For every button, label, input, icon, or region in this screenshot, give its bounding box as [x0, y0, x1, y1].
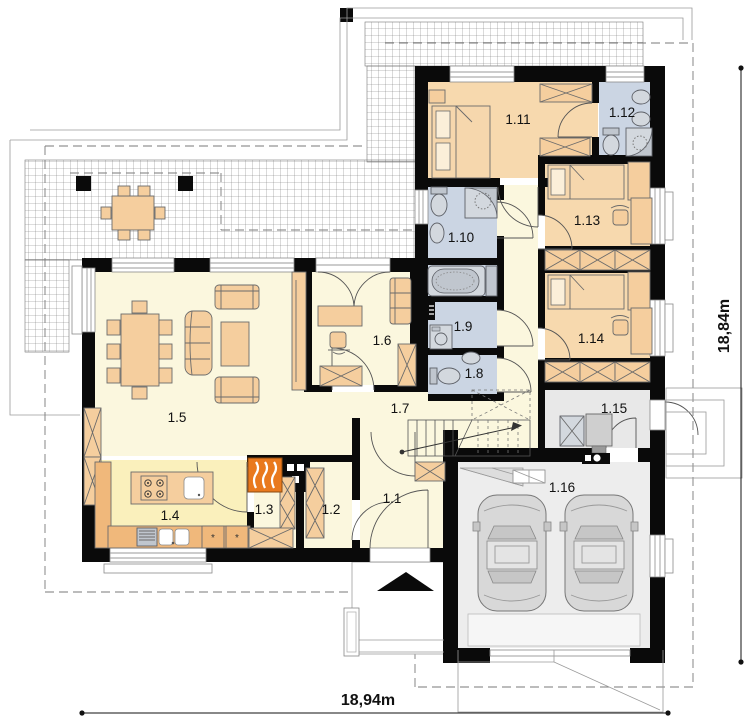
washing-machine-icon	[430, 325, 452, 349]
toilet-icon	[603, 128, 619, 155]
terrace-door-opening	[316, 258, 390, 272]
car	[560, 495, 638, 611]
garage-door-zone	[468, 614, 640, 646]
single-bed	[548, 165, 624, 199]
wardrobe	[540, 138, 590, 156]
window	[72, 266, 95, 334]
kitchen-island	[131, 472, 213, 504]
side-table	[628, 162, 650, 200]
svg-text:*: *	[211, 533, 215, 544]
room-label-1-13: 1.13	[574, 213, 600, 228]
wardrobe	[249, 528, 293, 548]
room-label-1-4: 1.4	[161, 508, 180, 523]
sofa	[185, 311, 212, 375]
room-label-1-8: 1.8	[465, 366, 484, 381]
wardrobe	[540, 84, 592, 102]
planter	[344, 608, 359, 656]
room-label-1-10: 1.10	[448, 230, 474, 245]
room-label-1-9: 1.9	[454, 319, 473, 334]
garage-step	[513, 470, 545, 483]
loveseat	[215, 285, 259, 309]
sink-icon	[430, 223, 444, 243]
window	[450, 66, 514, 82]
coffee-table	[221, 322, 249, 366]
room-hall-floor	[304, 392, 443, 462]
loveseat	[215, 377, 259, 403]
window	[415, 190, 428, 224]
heater-unit-icon	[582, 453, 610, 464]
shower-icon	[626, 128, 652, 156]
small-sofa	[390, 278, 411, 324]
entry-door-opening	[370, 548, 430, 562]
svg-text:*: *	[235, 533, 239, 544]
storage-box	[560, 416, 584, 446]
wardrobe-row	[545, 250, 650, 270]
boiler-icon	[586, 414, 612, 446]
side-table	[628, 272, 650, 310]
room-label-1-2: 1.2	[322, 502, 341, 517]
shower-icon	[465, 188, 497, 218]
room-label-1-1: 1.1	[383, 491, 402, 506]
bathtub-icon	[428, 266, 497, 296]
kitchen-sink-unit	[137, 528, 189, 546]
room-label-1-15: 1.15	[601, 401, 627, 416]
room-label-1-16: 1.16	[549, 480, 575, 495]
wardrobe	[415, 462, 445, 481]
dimension-bottom: 18,94m	[341, 692, 395, 709]
wall-radiator-icon	[428, 302, 435, 320]
terrace-column	[340, 8, 353, 22]
wardrobe	[398, 344, 416, 386]
room-label-1-3: 1.3	[255, 502, 274, 517]
toilet-icon	[430, 368, 460, 384]
sink-icon	[632, 90, 650, 104]
desk	[631, 308, 652, 354]
floor-plan: * *	[0, 0, 750, 726]
tall-cabinet	[292, 272, 306, 390]
window	[650, 300, 673, 356]
window	[104, 548, 212, 573]
room-label-1-6: 1.6	[373, 333, 392, 348]
toilet-icon	[431, 187, 447, 216]
desk	[631, 198, 652, 244]
car	[473, 495, 551, 611]
sink-icon	[462, 352, 480, 364]
window	[650, 535, 673, 577]
room-label-1-12: 1.12	[609, 105, 635, 120]
utility-exterior-door	[650, 400, 665, 430]
wardrobe	[320, 366, 362, 386]
terrace-column	[178, 176, 193, 191]
wardrobe-row	[545, 362, 650, 382]
single-bed	[548, 275, 624, 309]
dimension-right: 18,84m	[716, 299, 733, 353]
desk	[318, 306, 362, 326]
room-label-1-5: 1.5	[168, 410, 187, 425]
window	[112, 258, 174, 272]
window	[606, 66, 644, 82]
fireplace	[248, 458, 282, 492]
double-bed	[432, 106, 490, 178]
garage-door	[490, 650, 630, 656]
window	[650, 188, 673, 244]
terrace-column	[76, 176, 91, 191]
nightstand	[429, 90, 445, 103]
room-label-1-7: 1.7	[391, 401, 410, 416]
room-label-1-11: 1.11	[505, 112, 530, 127]
window	[210, 258, 294, 272]
island-sink-icon	[184, 477, 204, 499]
room-label-1-14: 1.14	[578, 331, 605, 346]
